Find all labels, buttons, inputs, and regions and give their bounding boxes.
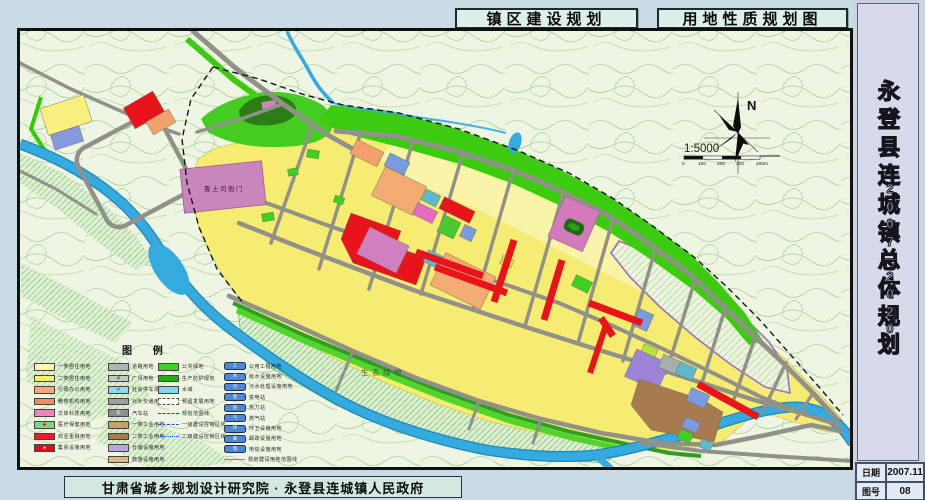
legend-title: 图 例	[122, 342, 172, 357]
legend-item: 二类居住用地	[34, 373, 91, 385]
sidebar-panel: 永登县连城镇总体规划 2007—2020	[857, 3, 919, 461]
legend-swatch	[108, 444, 129, 452]
legend-swatch: 车	[108, 409, 129, 417]
legend-swatch: 变	[224, 393, 246, 401]
legend-item: 行政办公用地	[34, 384, 91, 396]
map-title-construction-plan: 镇区建设规划	[455, 8, 638, 29]
legend-item: 一级建设控制区线	[158, 419, 226, 431]
legend-item: 文体科技用地	[34, 407, 91, 419]
legend-label: 汽车站	[132, 410, 149, 417]
legend-item: 水域	[158, 384, 226, 396]
legend-item: 工公用工程用地	[224, 361, 298, 371]
legend-swatch	[158, 375, 179, 383]
legend-item: 规划建设用地范围线	[224, 455, 298, 465]
svg-text:100: 100	[698, 161, 706, 167]
svg-text:400m: 400m	[756, 161, 768, 167]
legend-swatch: ◆	[108, 375, 129, 383]
legend-label: 旅游设施用地	[132, 456, 165, 463]
legend-item: 二级建设控制区线	[158, 431, 226, 443]
legend-swatch	[34, 398, 55, 406]
credit-box: 甘肃省城乡规划设计研究院 · 永登县连城镇人民政府	[64, 476, 462, 498]
legend-label: 二级建设控制区线	[182, 433, 226, 440]
legend-swatch: 工	[224, 362, 246, 370]
date-value: 2007.11	[886, 463, 924, 482]
legend-label: 热力站	[249, 404, 266, 411]
legend-item: 仓储设施用地	[108, 442, 171, 454]
legend-label: 给水设施用地	[249, 373, 282, 380]
legend-label: 污水处理设施用地	[249, 383, 293, 390]
legend-label: 燃气站	[249, 415, 266, 422]
legend-label: 一类居住用地	[58, 363, 91, 370]
legend-swatch	[158, 363, 179, 371]
legend-swatch	[34, 375, 55, 383]
legend-label: 仓储设施用地	[132, 444, 165, 451]
legend-label: 行政办公用地	[58, 386, 91, 393]
legend-label: 水域	[182, 386, 193, 393]
legend-swatch	[158, 421, 179, 429]
legend-item: 污污水处理设施用地	[224, 382, 298, 392]
legend-label: 公共绿地	[182, 363, 204, 370]
legend-label: 电信设施用地	[249, 446, 282, 453]
legend-swatch: 环	[224, 425, 246, 433]
legend-column: 公共绿地生产防护绿地水域预留发展用地规划范围线一级建设控制区线二级建设控制区线	[158, 361, 226, 442]
legend-swatch	[108, 398, 129, 406]
title-sidebar: 永登县连城镇总体规划 2007—2020 日期 2007.11 图号 08	[853, 0, 925, 500]
legend-item: ✚医疗保健用地	[34, 419, 91, 431]
legend-item: 教育机构用地	[34, 396, 91, 408]
legend-swatch	[158, 432, 179, 440]
legend-swatch: ★	[34, 444, 55, 452]
legend-swatch	[158, 398, 179, 406]
legend-label: 生产防护绿地	[182, 375, 215, 382]
svg-text:300: 300	[736, 161, 744, 167]
sheet-number-value: 08	[886, 482, 924, 500]
legend-label: 环卫设施用地	[249, 425, 282, 432]
map-title-landuse-plan: 用地性质规划图	[657, 8, 848, 29]
legend-item: 生产防护绿地	[158, 373, 226, 385]
legend-label: 教育机构用地	[58, 398, 91, 405]
legend-swatch: ✚	[34, 421, 55, 429]
legend-swatch: 热	[224, 404, 246, 412]
legend-swatch: 气	[224, 414, 246, 422]
legend-swatch: 邮	[224, 435, 246, 443]
legend-swatch	[158, 409, 179, 417]
plan-period-vertical: 2007—2020	[883, 180, 897, 338]
map-legend: 图 例 一类居住用地二类居住用地行政办公用地教育机构用地文体科技用地✚医疗保健用…	[34, 342, 330, 474]
legend-item: 公共绿地	[158, 361, 226, 373]
legend-swatch	[34, 363, 55, 371]
legend-swatch	[224, 456, 245, 464]
legend-swatch	[158, 386, 179, 394]
legend-label: 集贸设施用地	[58, 444, 91, 451]
historic-site-label: 鲁土司衙门	[204, 184, 244, 193]
legend-item: 邮邮政设施用地	[224, 434, 298, 444]
legend-item: 热热力站	[224, 403, 298, 413]
sheet-number-label: 图号	[856, 482, 886, 500]
legend-item: 预留发展用地	[158, 396, 226, 408]
legend-label: 道路用地	[132, 363, 154, 370]
legend-label: 医疗保健用地	[58, 421, 91, 428]
legend-label: 规划建设用地范围线	[248, 456, 298, 463]
legend-swatch	[34, 409, 55, 417]
scale-ratio: 1:5000	[684, 143, 719, 155]
legend-column: 工公用工程用地水给水设施用地污污水处理设施用地变变电站热热力站气燃气站环环卫设施…	[224, 361, 298, 465]
legend-swatch: 污	[224, 383, 246, 391]
legend-label: 文体科技用地	[58, 410, 91, 417]
eco-green-label: 生态绿地	[361, 367, 405, 377]
legend-label: 规划范围线	[182, 410, 210, 417]
legend-swatch: P	[108, 386, 129, 394]
legend-item: 气燃气站	[224, 413, 298, 423]
date-label: 日期	[856, 463, 886, 482]
legend-swatch: 水	[224, 373, 246, 381]
legend-item: 电电信设施用地	[224, 444, 298, 454]
legend-label: 二类居住用地	[58, 375, 91, 382]
legend-column: 一类居住用地二类居住用地行政办公用地教育机构用地文体科技用地✚医疗保健用地商业金…	[34, 361, 91, 454]
legend-item: 变变电站	[224, 392, 298, 402]
svg-text:0: 0	[682, 161, 685, 167]
legend-item: 水给水设施用地	[224, 371, 298, 381]
sheet-info-table: 日期 2007.11 图号 08	[855, 462, 925, 500]
legend-item: 规划范围线	[158, 407, 226, 419]
legend-label: 公用工程用地	[249, 363, 282, 370]
legend-swatch	[108, 363, 129, 371]
legend-swatch	[108, 456, 129, 464]
legend-item: ★集贸设施用地	[34, 442, 91, 454]
legend-label: 预留发展用地	[182, 398, 215, 405]
legend-item: 商业金融用地	[34, 431, 91, 443]
legend-swatch	[108, 433, 129, 441]
legend-item: 一类居住用地	[34, 361, 91, 373]
legend-item: 旅游设施用地	[108, 454, 171, 466]
legend-swatch	[34, 433, 55, 441]
legend-swatch: 电	[224, 445, 246, 453]
legend-swatch	[34, 386, 55, 394]
legend-swatch	[108, 421, 129, 429]
legend-item: 环环卫设施用地	[224, 423, 298, 433]
north-label: N	[747, 98, 756, 113]
legend-label: 变电站	[249, 394, 266, 401]
legend-label: 广场用地	[132, 375, 154, 382]
legend-label: 邮政设施用地	[249, 435, 282, 442]
legend-label: 商业金融用地	[58, 433, 91, 440]
svg-text:200: 200	[717, 161, 725, 167]
legend-label: 一级建设控制区线	[182, 421, 226, 428]
planning-sheet: { "titles": { "left": "镇区建设规划", "right":…	[0, 0, 925, 500]
